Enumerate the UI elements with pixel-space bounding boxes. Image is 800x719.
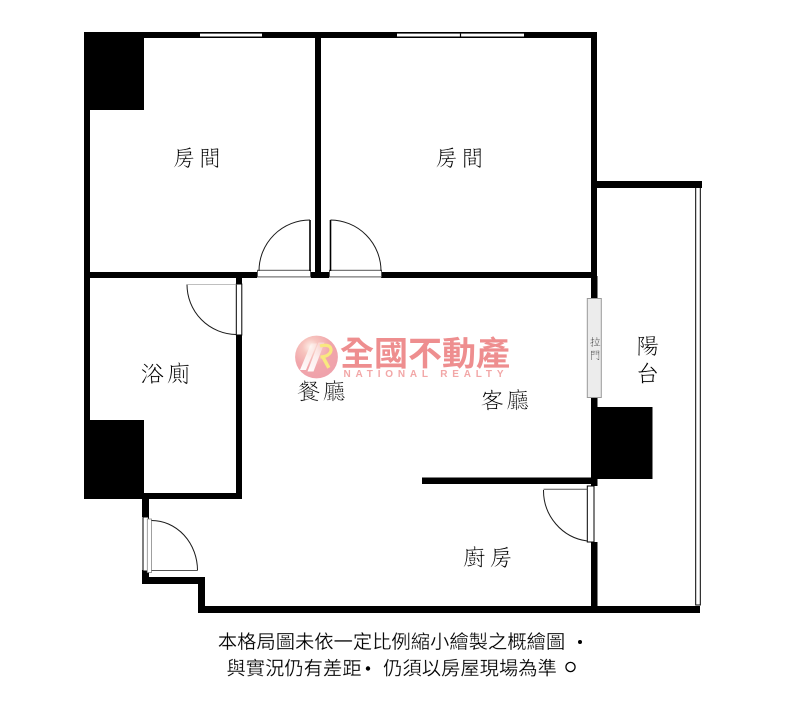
svg-text:NATIONAL REALTY: NATIONAL REALTY <box>344 369 504 380</box>
